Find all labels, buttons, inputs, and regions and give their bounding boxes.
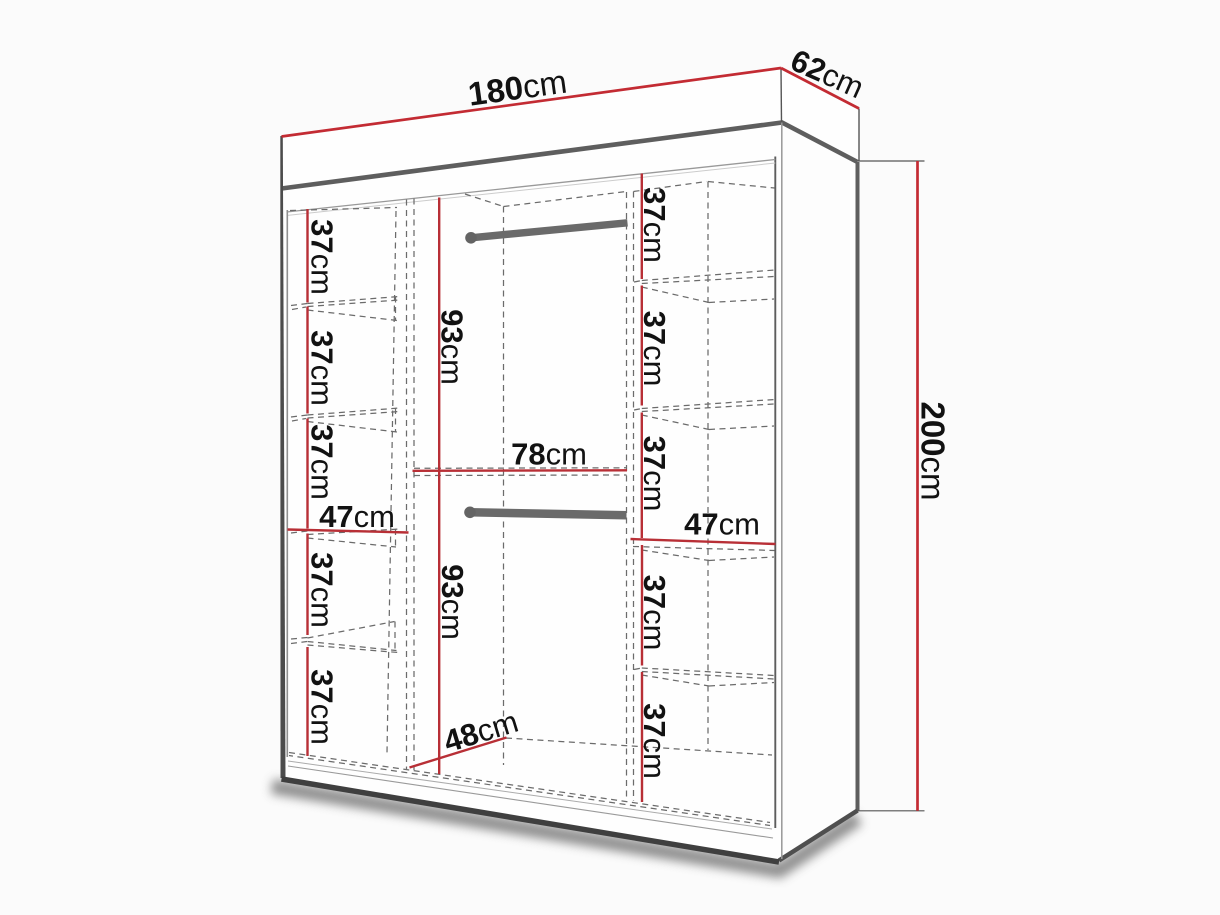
- svg-text:47cm: 47cm: [684, 507, 760, 542]
- svg-text:37cm: 37cm: [637, 575, 672, 651]
- svg-text:37cm: 37cm: [637, 311, 672, 387]
- svg-text:47cm: 47cm: [319, 499, 395, 534]
- svg-text:37cm: 37cm: [637, 436, 672, 512]
- svg-text:93cm: 93cm: [435, 309, 470, 385]
- svg-text:37cm: 37cm: [305, 424, 340, 500]
- svg-text:93cm: 93cm: [435, 564, 470, 640]
- svg-text:37cm: 37cm: [637, 187, 672, 263]
- svg-text:37cm: 37cm: [305, 219, 340, 295]
- svg-text:37cm: 37cm: [305, 330, 340, 406]
- svg-text:78cm: 78cm: [511, 437, 587, 472]
- svg-text:37cm: 37cm: [305, 552, 340, 628]
- svg-text:200cm: 200cm: [915, 401, 952, 500]
- svg-text:37cm: 37cm: [637, 703, 672, 779]
- svg-text:37cm: 37cm: [305, 669, 340, 745]
